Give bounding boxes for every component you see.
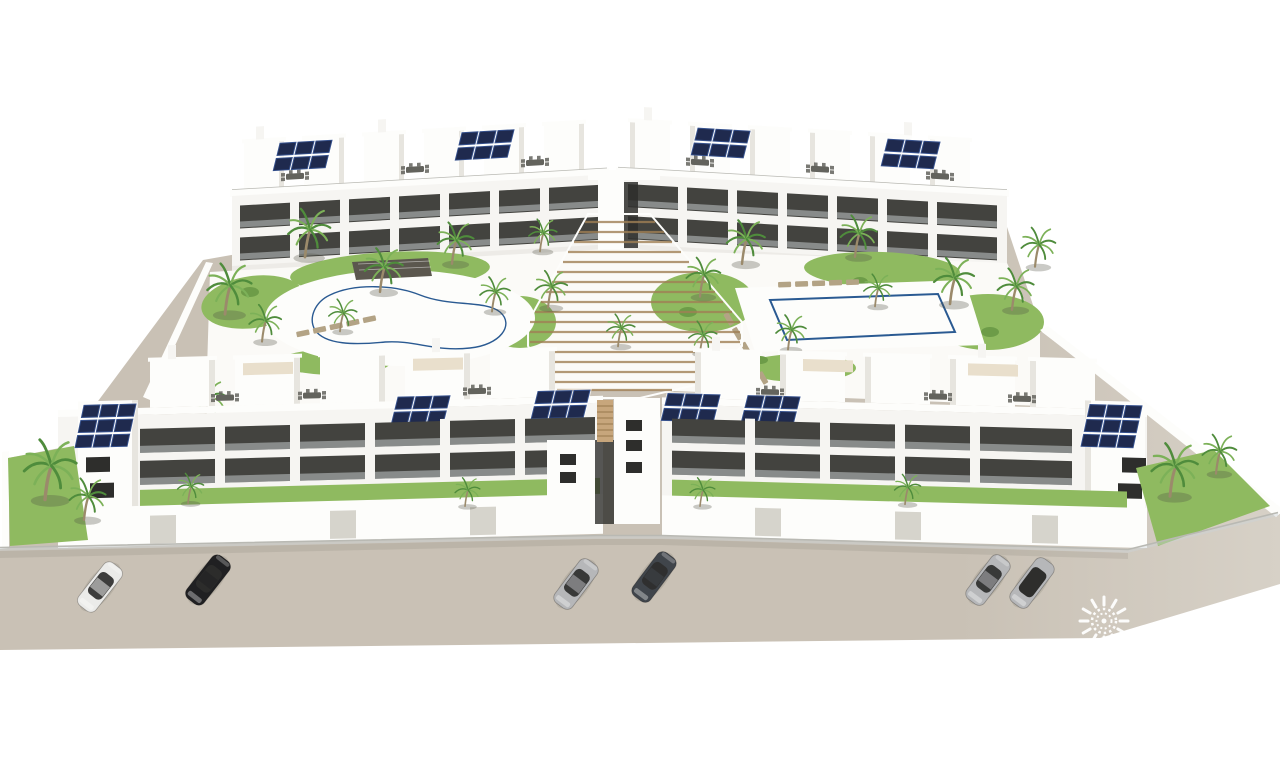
roof-vent [644,107,652,120]
solar-panel-array [73,402,137,448]
roof-vent [256,126,264,139]
roof-vent [432,338,440,352]
solar-panel-array [660,392,722,423]
terrace-canopy [243,362,293,375]
solar-panel-array [690,126,752,159]
garden-gate [755,508,781,537]
solar-panel-array [530,389,592,420]
terrace-canopy [413,357,463,370]
architectural-render [0,0,1280,768]
roof-vent [978,344,986,358]
solar-panel-array [880,137,942,170]
render-scene [0,0,1280,768]
roof-vent [168,345,176,359]
terrace-canopy [968,363,1018,376]
garden-gate [1032,515,1058,544]
front-right-building [660,335,1147,548]
garden-gate [150,515,176,544]
garden-gate [895,511,921,540]
roof-vent [712,337,720,351]
terrace-canopy [803,359,853,372]
garden-gate [470,507,496,536]
roof-vent [904,122,912,135]
garden-gate [330,510,356,539]
roof-vent [378,119,386,132]
solar-panel-array [454,128,516,161]
solar-panel-array [1079,403,1143,449]
solar-panel-array [272,139,334,172]
